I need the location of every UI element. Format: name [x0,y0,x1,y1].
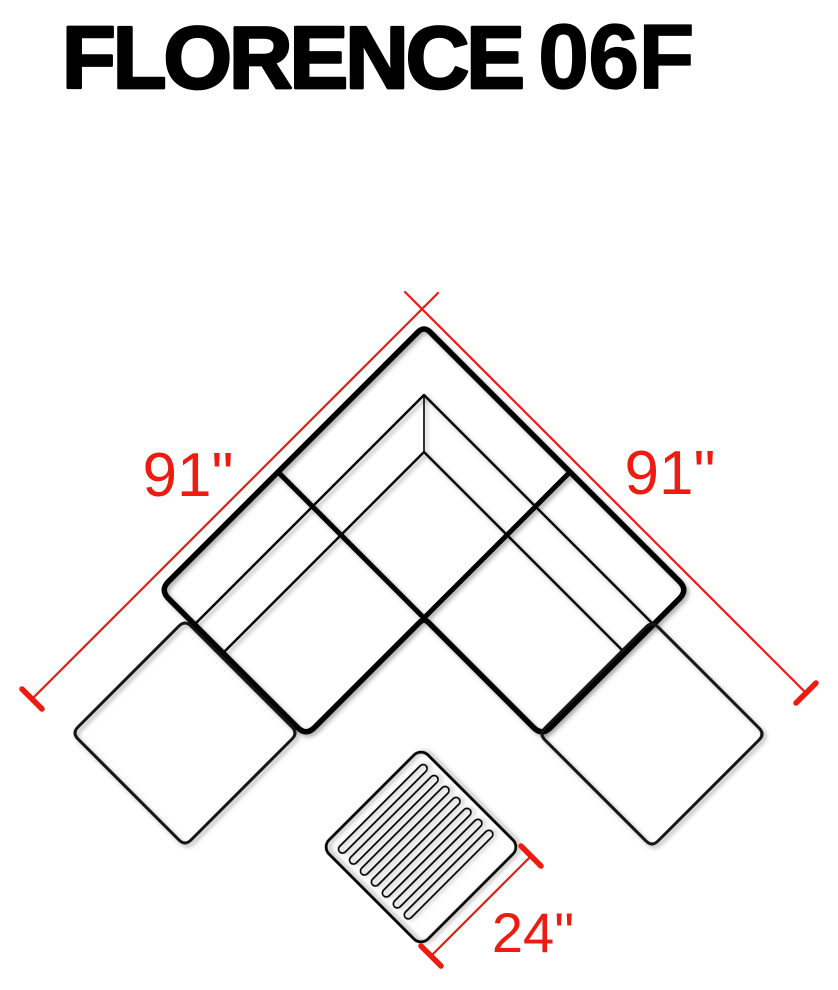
corner-section-divider-left [278,472,424,618]
corner-section-divider-right [424,472,570,618]
sectional-sofa-group [164,329,684,732]
dimension-line-left [32,293,438,699]
dimension-label-right: 91" [625,439,716,508]
coffee-table-slat [370,796,462,888]
product-model-label: 06F [538,6,694,108]
page-title: FLORENCE06F [62,6,694,108]
product-dimension-diagram: FLORENCE06F [0,0,838,990]
end-table-right [542,624,762,844]
coffee-table-slat [348,774,440,866]
coffee-table-group [322,748,520,946]
coffee-table-slat [337,763,429,855]
florence-06f-diagram-canvas: FLORENCE06F [0,0,838,990]
coffee-table-slat [381,807,473,899]
dimension-label-coffee-table: 24" [492,901,574,964]
product-name-label: FLORENCE [62,8,522,107]
end-table-left [75,623,295,843]
dimension-label-left: 91" [143,441,234,510]
sectional-sofa-outline [164,329,684,732]
coffee-table-top [322,748,520,946]
coffee-table-slat [359,785,451,877]
